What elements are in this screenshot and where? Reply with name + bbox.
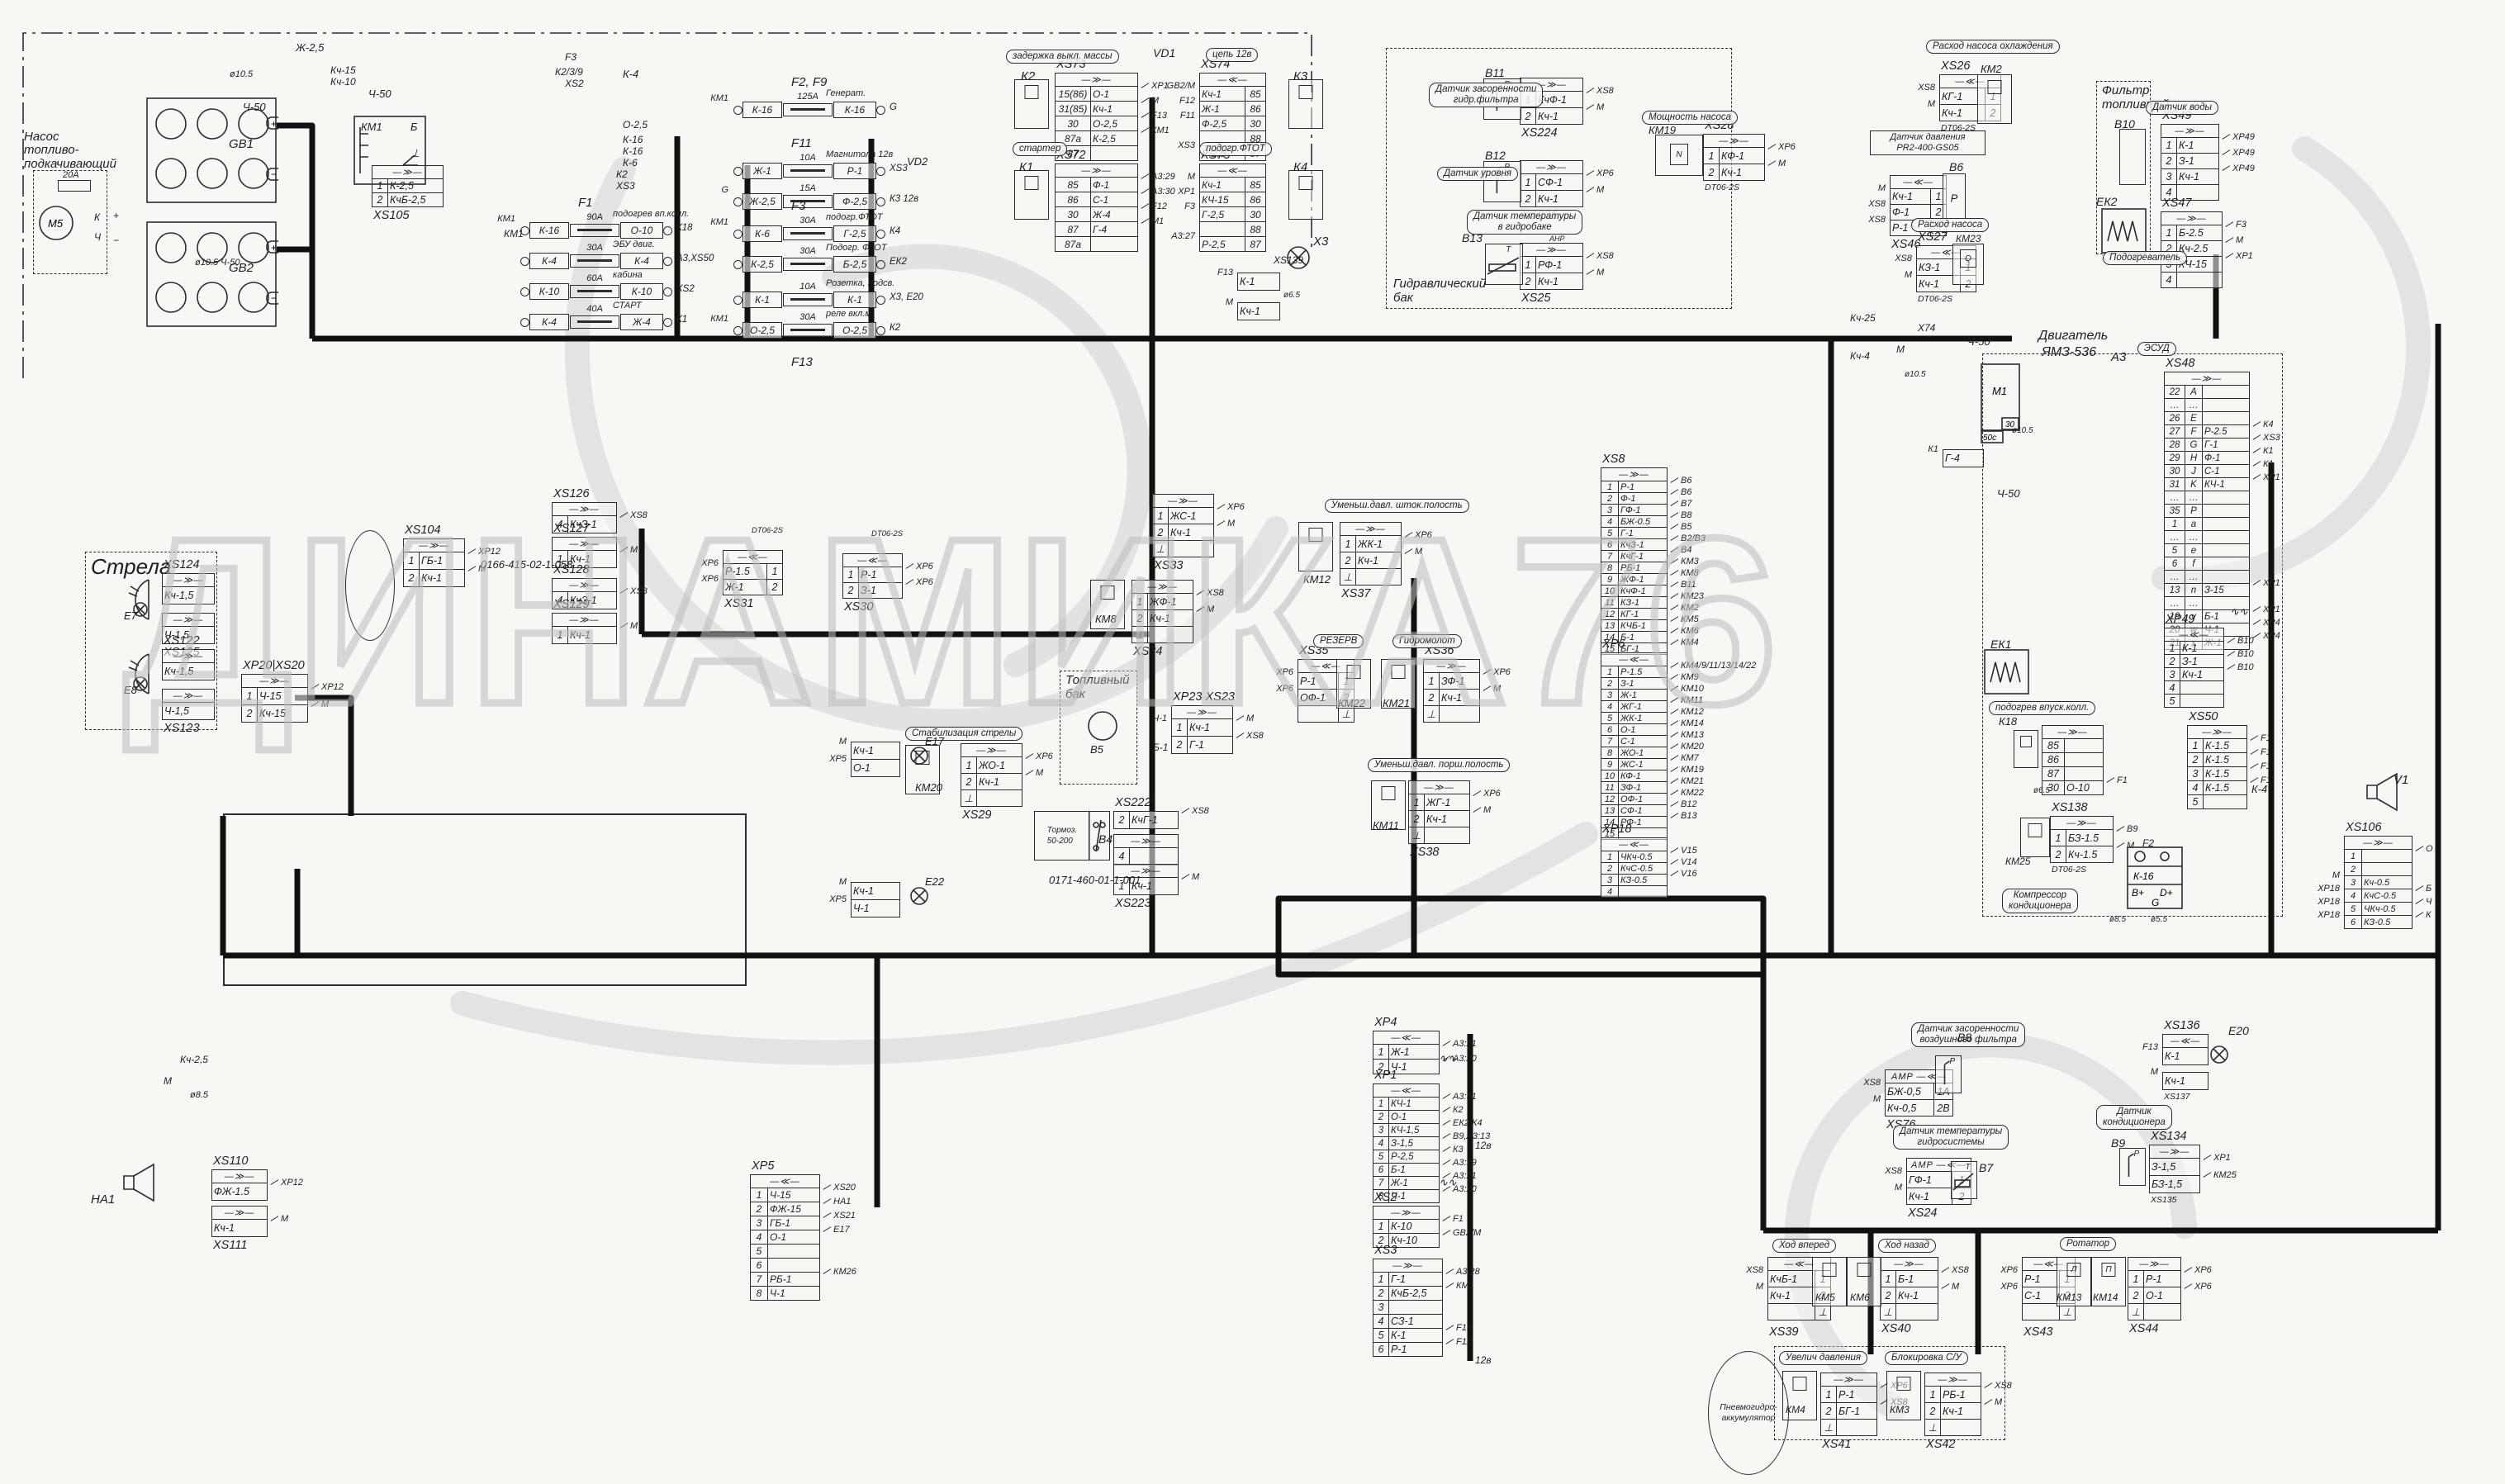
pin-table: —≫—1О23Кч-0.5М4КчС-0.5ХР18Б5ЧКч-0.5ХР18Ч… <box>2344 836 2412 929</box>
wire-dest-label: КМ13 <box>1670 730 1704 740</box>
pin-row: 1БЗ-1.5В9 <box>2051 830 2113 846</box>
wire-cell: О-1 <box>2143 1287 2180 1303</box>
pin-cell: ⊥ <box>1340 569 1355 585</box>
pin-row: 4О-1Е17 <box>751 1230 819 1244</box>
wire-source-label: М <box>839 737 847 747</box>
connector-block-XS37: —≫—1ЖК-1ХР62Кч-1М⊥XS37 <box>1340 522 1402 586</box>
wire-source-label: ХР6 <box>701 574 719 584</box>
wire-cell: ЖФ-1 <box>1147 594 1193 609</box>
pin-cell: 85 <box>1056 178 1090 192</box>
pin-table: —≫—1СФ-1ХР62Кч-1М <box>1520 160 1583 207</box>
connector-direction-icon: —≫— <box>1132 581 1193 594</box>
wire-label: ø10.5 <box>1905 370 1926 379</box>
wire-cell: С-1 <box>2202 465 2249 477</box>
wire-dest-label: А3:29 <box>1141 172 1175 182</box>
wire-dest-label: V14 <box>1670 857 1697 867</box>
connector-direction-icon: —≫— <box>163 650 214 663</box>
wire-cell <box>767 1245 819 1258</box>
pin-row: 1Г-1А3:28 <box>1373 1273 1442 1286</box>
pin-cell: 2 <box>766 580 782 595</box>
pin-cell: E <box>2185 412 2202 424</box>
wire-dest-label: ХР6 <box>1473 789 1501 799</box>
wire-cell: БЖ-0,5 <box>1886 1083 1933 1099</box>
wire-label: Е7 <box>124 609 137 622</box>
fuse-block-name: F1 <box>578 196 593 210</box>
wire-label: КМ21 <box>1383 697 1410 709</box>
wire-dest-label: М <box>1236 714 1254 723</box>
leader-tick <box>1181 808 1189 813</box>
wire-dest-label: XS8 <box>1586 86 1614 96</box>
leader-tick <box>1586 104 1594 110</box>
terminal-icon <box>733 197 742 206</box>
wire-dest-label: ХР12 <box>270 1178 303 1188</box>
wire-label: Ч <box>94 231 101 243</box>
connector-direction-icon: —≫— <box>2188 726 2246 739</box>
pin-row: 1РФ-1XS8 <box>1521 257 1582 273</box>
wire-source-label: М <box>1905 270 1912 280</box>
wire-cell: Ж-1 <box>1200 102 1245 116</box>
svg-text:G: G <box>2152 897 2159 908</box>
pin-row: 7РБ-1КМ26 <box>751 1272 819 1286</box>
wire-cell: КчЗ-1 <box>1618 539 1667 550</box>
leader-tick <box>2203 1154 2211 1160</box>
connector-block-XS34: —≫—1ЖФ-1XS82Кч-1М⊥XS34 <box>1132 580 1193 643</box>
wire-label: В9 <box>2111 1136 2125 1150</box>
connector-block-XS222: 2КчГ-1XS8XS222 <box>1113 811 1179 829</box>
pin-row: 4БЖ-0.5В8 <box>1601 515 1667 527</box>
wire-dest-label: К3 <box>1442 1145 1464 1154</box>
wire-dest-label: КМ14 <box>1670 718 1704 728</box>
wire-dest-label: GB2/М <box>1442 1228 1481 1238</box>
wire-source-label: F3 <box>1184 202 1195 211</box>
connector-block-XS124: —≫—Кч-1,5XS124 <box>162 573 215 605</box>
wire-cell: Кч-1 <box>852 742 899 759</box>
wire-dest-label: В10 <box>2227 649 2254 659</box>
pin-row: 3Ж-1КМ10 <box>1601 689 1667 700</box>
leader-tick <box>1670 547 1678 552</box>
wire-cell: Кч-1.5 <box>2066 846 2113 862</box>
pin-cell: 6 <box>1601 539 1618 550</box>
wire-cell: К-1 <box>2176 138 2218 153</box>
pin-row: Кч-0,52ВМ <box>1886 1099 1952 1116</box>
leader-tick <box>467 548 476 554</box>
pin-cell: 1 <box>1132 594 1147 609</box>
pin-table: —≫—Ч-1,5 <box>162 689 215 720</box>
connector-block-XS123: —≫—Ч-1,5XS123 <box>162 689 215 720</box>
leader-tick <box>1445 1268 1454 1274</box>
connector-block-XS29: —≫—1ЖО-1ХР62Кч-1М⊥XS29 <box>961 743 1022 807</box>
fuse-circuit-label: подогрев вп.колл. <box>613 209 689 219</box>
pin-row: 86С-1А3:30 <box>1056 192 1137 206</box>
connector-block-XS33: —≫—1ЖС-1ХР62Кч-1М⊥XS33 <box>1152 494 1214 557</box>
leader-tick <box>1670 813 1678 818</box>
pin-table: —≫—15(86)О-1ХР131(85)Кч-1М30О-2,5F1387аК… <box>1055 73 1138 161</box>
wire-cell: Кч-1 <box>2176 169 2218 184</box>
pin-cell: 5 <box>1373 1150 1388 1163</box>
terminal-icon <box>876 230 885 239</box>
solenoid-valve-icon <box>2020 818 2050 857</box>
wire-cell: РБ-1 <box>767 1273 819 1286</box>
pin-table: Кч-1М <box>2162 1072 2208 1090</box>
wire-dest-label: К4 <box>2252 420 2274 429</box>
wire-source-label: М <box>1895 1183 1902 1192</box>
leader-tick <box>2252 421 2261 427</box>
wire-dest-label: КМ7 <box>1670 753 1699 763</box>
wire-label: КМ25 <box>2005 856 2030 867</box>
wire-cell: ЖФ-1 <box>1618 574 1667 585</box>
wire-dest-label: Б <box>2415 884 2431 894</box>
wire-cell: Кч-1,5 <box>163 587 214 604</box>
pin-cell: 4 <box>2188 781 2203 794</box>
pin-table: —≪—1ЧКч-0.5V152КчС-0.5V143КЗ-0.5V164 <box>1601 837 1668 898</box>
wire-dest-label: А3:31 <box>1442 1092 1477 1102</box>
fuse-circuit-label: СТАРТ <box>613 301 642 311</box>
component-outline <box>345 530 395 641</box>
wire-source-label: М <box>2332 870 2340 880</box>
fuse-block-F2F9: F2, F9К-16125АК-16GГенерат.КМ1 <box>733 101 885 131</box>
wire-label: ø5.5 <box>2151 915 2167 924</box>
wire-cell <box>1147 627 1193 642</box>
wire-label: КМ19 <box>1649 124 1676 136</box>
fuse-dest-label: К1 <box>676 315 687 325</box>
wire-label: КМ3 <box>1890 1404 1910 1415</box>
leader-tick <box>2222 165 2230 171</box>
pin-cell: J <box>2185 465 2202 477</box>
wire-cell: ОФ-1 <box>1618 794 1667 804</box>
pin-cell: 6 <box>1373 1164 1388 1176</box>
pin-cell: A <box>2185 386 2202 398</box>
wire-dest-label: М <box>619 545 638 555</box>
wire-dest-label: К1 <box>2252 446 2274 456</box>
wire-dest-label: Е17 <box>823 1225 850 1235</box>
pin-row: 8РБ-1КМ3 <box>1601 562 1667 573</box>
pin-row: …… <box>2165 570 2249 583</box>
solenoid-valve-icon <box>1977 74 2012 124</box>
wire-cell <box>2064 753 2103 766</box>
wire-cell <box>1388 1301 1442 1314</box>
pin-row: …… <box>2165 530 2249 543</box>
wire-label: ∿∿ <box>1439 1052 1457 1065</box>
wire-cell <box>2202 544 2249 557</box>
leader-tick <box>1984 1399 1992 1405</box>
terminal-icon <box>520 287 529 296</box>
connector-name: XS224 <box>1521 126 1558 140</box>
connector-direction-icon: —≫— <box>1881 1258 1938 1271</box>
pin-row: Г-2,530F3 <box>1200 206 1265 221</box>
connector-subname: XS135 <box>2151 1195 2177 1205</box>
wire-label: ЕК1 <box>1990 638 2011 651</box>
pin-cell: … <box>2165 491 2185 504</box>
wire-dest-label: XS8 <box>1181 806 1209 816</box>
leader-tick <box>2250 749 2258 755</box>
pin-cell: 5 <box>1373 1329 1388 1342</box>
pin-row: 2Кч-1М <box>1153 524 1213 540</box>
pin-cell: 6 <box>2165 557 2185 570</box>
connector-name: XS27 <box>1918 230 1947 244</box>
pin-row: 5ЖК-1КМ12 <box>1601 712 1667 723</box>
pin-table: —≫—1Р-1В62Ф-1В63ГФ-1В74БЖ-0.5В85Г-1В56Кч… <box>1601 467 1668 655</box>
wire-label: О-2,5 <box>623 119 648 130</box>
caption-balloon: Расход насоса охлаждения <box>1926 40 2060 54</box>
connector-direction-icon: —≫— <box>1153 495 1213 508</box>
wire-cell: К-1.5 <box>2203 767 2246 780</box>
pin-row: 5e <box>2165 543 2249 557</box>
wire-dest-label: М <box>1141 96 1159 106</box>
fuse-block-name: F3 <box>791 199 806 213</box>
caption-balloon: Ход назад <box>1878 1239 1936 1253</box>
leader-tick <box>1181 874 1189 879</box>
fuse-source-label: КМ1 <box>710 314 728 324</box>
wire-label: ø10.5 <box>2012 426 2033 435</box>
wire-dest-label: КМ9 <box>1670 672 1699 682</box>
pin-row: Кч-1М <box>212 1220 267 1236</box>
fuse-icon: 125А <box>783 103 833 116</box>
leader-tick <box>1670 616 1678 622</box>
leader-tick <box>823 1212 831 1218</box>
temperature-sensor-icon: T <box>1951 1161 1977 1199</box>
pin-row: 6КЗ-0.5ХР18К <box>2345 915 2412 928</box>
wire-dest-label: М <box>619 621 638 631</box>
connector-direction-icon: —≫— <box>1925 1373 1981 1387</box>
wire-dest-label: ХР4 <box>2252 631 2280 641</box>
connector-name: XS2 <box>1374 1191 1397 1204</box>
pin-row: 30О-10F1 <box>2042 780 2103 794</box>
wire-dest-label: ЕК2,К4 <box>1442 1118 1483 1128</box>
wire-cell: КЗ-1 <box>1618 597 1667 608</box>
wire-dest-label: ХР1 <box>2252 578 2280 588</box>
pin-cell: 88 <box>1245 222 1265 236</box>
leader-tick <box>1670 512 1678 518</box>
pin-cell: 2 <box>843 583 858 598</box>
wire-cell: Кч-1 <box>1719 164 1764 180</box>
pin-table: —≫—Кч-1М <box>211 1206 268 1237</box>
fuse-row: К-630АГ-2,5К4подогр.ФТОТКМ1 <box>733 225 885 243</box>
pin-row: Кч-185М <box>1200 178 1265 192</box>
connector-block-XS8: —≫—1Р-1В62Ф-1В63ГФ-1В74БЖ-0.5В85Г-1В56Кч… <box>1601 467 1668 656</box>
wire-cell: Кч-1 <box>1891 189 1930 204</box>
fuse-icon: 15А <box>783 195 833 208</box>
pin-cell: 1 <box>2128 1271 2143 1287</box>
wire-dest-label: М <box>1025 768 1043 778</box>
wire-label: К3 <box>1293 69 1307 83</box>
wire-cell <box>2202 386 2249 398</box>
pin-row: 9ЖФ-1КМ8 <box>1601 573 1667 585</box>
connector-name: XS136 <box>2164 1019 2200 1032</box>
pin-row: …… <box>2165 398 2249 411</box>
wire-cell: КГ-1 <box>1618 609 1667 619</box>
wire-dest-label: ХР6 <box>1586 168 1614 178</box>
leader-tick <box>1670 801 1678 807</box>
connector-direction-icon: —≫— <box>553 503 616 516</box>
pin-row: 3К-1.5F1 <box>2188 766 2246 780</box>
leader-tick <box>2252 619 2261 625</box>
wire-label: Двигатель <box>2038 329 2108 344</box>
pin-row: 2КчГ-1XS8 <box>1114 812 1178 828</box>
wire-dest-label: ХР6 <box>1025 751 1053 761</box>
pin-row: 30О-2,5F13 <box>1056 116 1137 130</box>
connector-direction-icon: —≪— <box>2165 628 2223 642</box>
pin-row: 1ЗФ-1ХР6 <box>1424 673 1479 689</box>
wire-cell: О-1 <box>1090 87 1137 101</box>
wire-source-label: F11 <box>1180 111 1195 121</box>
pin-cell: 3 <box>2345 876 2361 889</box>
pin-cell: 1 <box>961 757 976 773</box>
connector-block-XS3: —≫—1Г-1А3:282КчБ-2,5КМ134СЗ-15К-1F136Р-1… <box>1373 1259 1443 1357</box>
wire-dest-label: В8 <box>1670 510 1691 520</box>
pin-row: 1Кч-1М <box>553 627 616 643</box>
connector-direction-icon: —≫— <box>553 538 616 551</box>
wire-cell <box>767 1259 819 1272</box>
wire-label: КМ13 <box>2057 1292 2081 1303</box>
wire-cell: ЖС-1 <box>1618 759 1667 770</box>
pin-row: 1Кч-1Ч-1М <box>1172 719 1232 736</box>
wire-label: Ч-50 <box>1967 335 1990 348</box>
pin-cell: 2 <box>1114 812 1129 828</box>
wire-dest-label: F1 <box>2106 775 2128 785</box>
pin-row: 13nЗ-15ХР1 <box>2165 583 2249 596</box>
connector-block-x3a: К-1F13 <box>1237 273 1280 291</box>
pin-cell: 1 <box>1409 794 1424 810</box>
pin-cell: 3 <box>2161 169 2176 184</box>
pin-row: 85 <box>2042 739 2103 752</box>
wire-dest-label: КМ1 <box>1445 1281 1474 1291</box>
wire-label: КМ11 <box>1373 819 1399 832</box>
pin-row: 2Кч-1М <box>961 773 1022 789</box>
wire-dest-label: ХР1 <box>2252 472 2280 482</box>
wire-cell: КчФ-1 <box>1618 586 1667 596</box>
pin-cell: 5 <box>2165 695 2180 707</box>
pin-table: —≫—1Б-2.5F32Кч-2.5М3КЧ-15ХР14 <box>2161 211 2223 288</box>
pin-row: 4 <box>2165 680 2223 694</box>
wire-label: В7 <box>1979 1161 1993 1174</box>
connector-block-XS110: —≫—ФЖ-1.5ХР12XS110 <box>211 1169 268 1201</box>
wire-label: F2 <box>2142 837 2154 849</box>
pin-row: 2Кч-1М <box>1340 552 1401 568</box>
wire-label: В12 <box>1485 149 1506 162</box>
leader-tick <box>1442 1107 1450 1112</box>
pin-cell: 6 <box>1373 1343 1388 1356</box>
pin-cell: 8 <box>1601 562 1618 573</box>
wire-dest-label: ХР6 <box>1404 530 1432 540</box>
pin-cell: … <box>2165 571 2185 583</box>
connector-direction-icon: —≪— <box>751 1175 819 1188</box>
wire-label: М <box>164 1075 172 1087</box>
pressure-switch-icon: P <box>2119 1148 2146 1186</box>
fuse-in-wire: К-10 <box>529 283 569 300</box>
terminal-icon <box>733 260 742 269</box>
pin-row: …… <box>2165 491 2249 504</box>
terminal-icon <box>663 257 672 266</box>
pin-cell: 13 <box>2165 584 2185 596</box>
pin-row: 9ЖС-1КМ7 <box>1601 758 1667 770</box>
pin-row: 3 <box>1373 1300 1442 1314</box>
fuse-dest-label: XS3 <box>890 164 908 173</box>
wire-dest-label: М <box>311 699 329 709</box>
wire-source-label: ХР18 <box>2318 897 2340 907</box>
pin-cell: 30 <box>1245 116 1265 130</box>
pin-row: ⊥ <box>1153 540 1213 557</box>
wire-cell: РФ-1 <box>1535 257 1582 273</box>
pin-cell: 1 <box>1521 174 1535 190</box>
pin-cell: 10 <box>1601 586 1618 596</box>
pin-table: —≫—1КФ-1ХР62Кч-1М <box>1703 134 1765 181</box>
fuse-dest-label: Х3, Е20 <box>890 292 923 302</box>
leader-tick <box>2252 606 2261 612</box>
hydro-tank-box-label: Гидравлический бак <box>1393 277 1486 305</box>
fuse-circuit-label: ЭБУ двиг. <box>613 239 655 249</box>
wire-label: ∿∿ <box>1439 1176 1457 1189</box>
fuse-source-label: КМ1 <box>497 214 515 224</box>
wire-cell: СФ-1 <box>1618 805 1667 816</box>
pin-cell: 4 <box>2165 681 2180 694</box>
wire-label: ø10.5 Ч-50 <box>195 258 240 268</box>
connector-block-XS75: —≪—Кч-185МКЧ-1586ХР1Г-2,530F388Р-2,587А3… <box>1199 164 1266 252</box>
fuse-out-wire: К-16 <box>833 102 876 118</box>
pin-row: Ж-186F12 <box>1200 101 1265 116</box>
fuse-dest-label: К3 12в <box>890 194 918 204</box>
wire-cell: КЧ-15 <box>1200 192 1245 206</box>
pin-cell: 13 <box>1601 805 1618 816</box>
pin-row: Кч-1М <box>852 883 899 899</box>
schematic-page: ДИНАМИКА76 Насос топливо- подкачивающийС… <box>0 0 2505 1484</box>
connector-direction-icon: —≫— <box>163 690 214 703</box>
pin-cell: ⊥ <box>2128 1304 2143 1320</box>
wire-cell <box>1768 1304 1815 1320</box>
pin-row: 1Р-1ХР6 <box>2128 1271 2180 1287</box>
leader-tick <box>1670 570 1678 576</box>
leader-tick <box>823 1268 831 1274</box>
pin-row: 1Ж-1А3:21 <box>1373 1045 1439 1059</box>
wire-cell: РБ-1 <box>1940 1387 1981 1402</box>
wire-dest-label: КМ8 <box>1670 568 1699 578</box>
wire-dest-label: ХР1 <box>2252 605 2280 614</box>
fuel-level-sensor-icon <box>1087 710 1120 747</box>
connector-block-ХР6: —≪—1Р-1.5КМ4/9/11/13/14/222З-1КМ93Ж-1КМ1… <box>1601 652 1668 841</box>
wire-label: VD1 <box>1153 46 1175 59</box>
wire-dest-label: КМ20 <box>1670 742 1704 751</box>
pin-cell: ⊥ <box>1424 706 1439 722</box>
pin-cell: 1 <box>2188 739 2203 752</box>
wire-label: ø10.5 <box>230 69 253 79</box>
fuse-rating: 40А <box>586 304 603 314</box>
wire-dest-label: М <box>1941 1282 1959 1292</box>
pin-cell: 2 <box>1172 737 1187 753</box>
pin-row: 2Кч-1М <box>404 569 464 586</box>
connector-name: XS31 <box>724 597 753 610</box>
connector-name: XS106 <box>2346 821 2382 834</box>
wire-cell: К-1 <box>1238 273 1279 290</box>
connector-name: XS104 <box>405 524 441 537</box>
wire-dest-label: XS20 <box>823 1183 856 1192</box>
pin-row: БЗ-1,5КМ25 <box>2150 1175 2199 1192</box>
connector-direction-icon: —≫— <box>2150 1145 2199 1159</box>
leader-tick <box>1670 524 1678 529</box>
wire-cell: Кч-1,5 <box>163 663 214 680</box>
pin-table: —≪—1КЧ-1А3:312О-1К23КЧ-1,5ЕК2,К44З-1,5В9… <box>1373 1083 1440 1203</box>
wire-cell: К-1 <box>2163 1048 2208 1064</box>
pin-row: 4З-1,5В9,А3:13 <box>1373 1136 1439 1150</box>
wire-dest-label: КМ11 <box>1670 695 1703 705</box>
wire-cell: КЧБ-1 <box>1618 620 1667 631</box>
wire-dest-label: XS8 <box>1984 1381 2012 1391</box>
pin-row: 2К-1.5F1 <box>2188 752 2246 766</box>
pin-row: З-1,5ХР1 <box>2150 1159 2199 1175</box>
connector-direction-icon: —≫— <box>2051 817 2113 830</box>
connector-name: XS47 <box>2162 197 2191 210</box>
fuse-icon: 30А <box>783 324 833 337</box>
wire-source-label: ХР5 <box>829 894 847 904</box>
wire-source-label: М <box>1873 1094 1881 1104</box>
